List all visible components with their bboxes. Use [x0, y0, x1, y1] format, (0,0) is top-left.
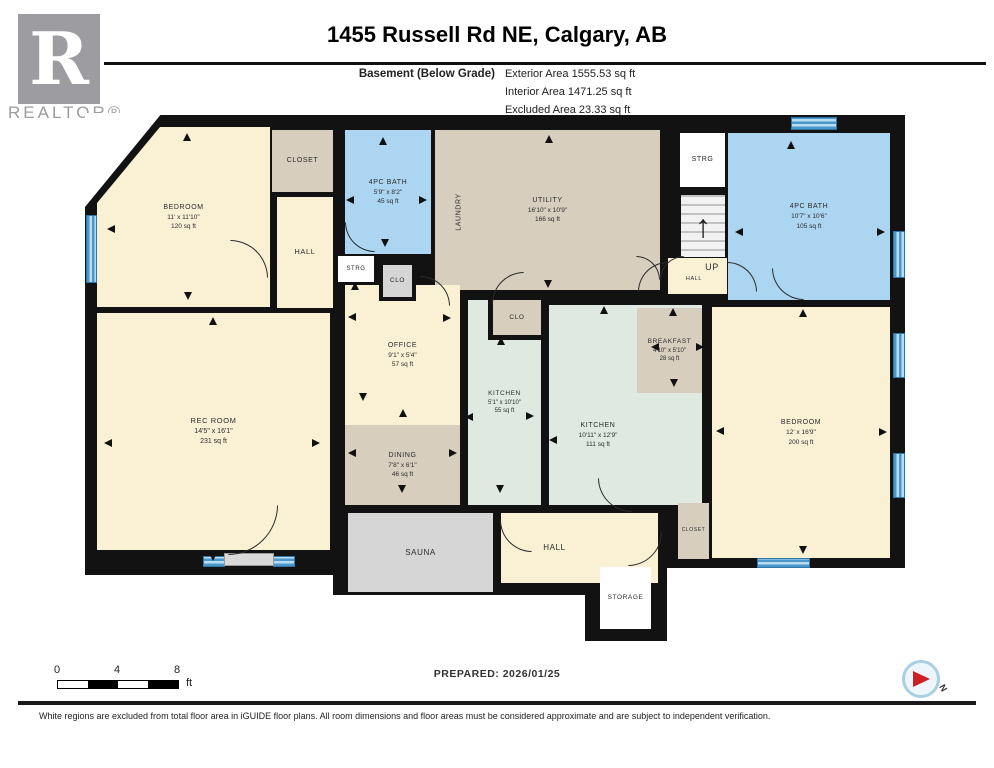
direction-arrow: [716, 427, 724, 435]
room-dining: DINING7'8" x 6'1"46 sq ft: [345, 425, 460, 505]
direction-arrow: [526, 412, 534, 420]
room-label: 57 sq ft: [392, 360, 413, 369]
direction-arrow: [419, 196, 427, 204]
room-strg-small: STRG: [338, 256, 374, 282]
room-label: DINING: [388, 451, 416, 461]
direction-arrow: [381, 239, 389, 247]
room-closet-top-left: CLOSET: [272, 130, 333, 192]
direction-arrow: [670, 379, 678, 387]
room-storage: STORAGE: [600, 567, 651, 629]
footer-divider: [18, 701, 976, 705]
room-label: 55 sq ft: [495, 407, 515, 416]
plan-label-up: UP: [705, 262, 719, 272]
room-label: HALL: [294, 247, 315, 258]
room-label: 9'1" x 5'4": [388, 351, 416, 360]
direction-arrow: [544, 280, 552, 288]
direction-arrow: [184, 292, 192, 300]
direction-arrow: [696, 343, 704, 351]
room-label: 7'8" x 6'1": [388, 461, 416, 470]
direction-arrow: [879, 428, 887, 436]
scale-bar-segments: [57, 680, 179, 689]
room-label: 120 sq ft: [171, 222, 196, 231]
room-label: 105 sq ft: [797, 222, 822, 231]
room-label: OFFICE: [388, 341, 417, 351]
direction-arrow: [799, 309, 807, 317]
room-label: 16'10" x 10'9": [528, 206, 567, 215]
direction-arrow: [348, 313, 356, 321]
room-label: 166 sq ft: [535, 215, 560, 224]
room-label: 5'9" x 8'2": [374, 188, 402, 197]
direction-arrow: [351, 282, 359, 290]
room-label: BEDROOM: [781, 418, 821, 428]
window: [86, 215, 97, 283]
room-label: 200 sq ft: [789, 438, 814, 447]
room-label: CLOSET: [287, 156, 319, 166]
window: [273, 556, 295, 567]
room-bedroom-right: BEDROOM12' x 16'9"200 sq ft: [712, 307, 890, 558]
direction-arrow: [417, 269, 425, 277]
direction-arrow: [735, 228, 743, 236]
room-label: SAUNA: [405, 547, 436, 559]
direction-arrow: [496, 485, 504, 493]
room-label: CLOSET: [682, 527, 706, 534]
direction-arrow: [379, 137, 387, 145]
floorplan-page: R REALTOR® 1455 Russell Rd NE, Calgary, …: [0, 0, 994, 768]
compass-north-label: N: [937, 683, 949, 694]
room-label: 10'11" x 12'9": [579, 431, 618, 440]
direction-arrow: [399, 409, 407, 417]
room-label: KITCHEN: [581, 421, 616, 431]
room-label: 231 sq ft: [200, 437, 227, 447]
stairs-up-arrow: ↑: [695, 210, 711, 242]
room-rec-room: REC ROOM14'5" x 16'1"231 sq ft: [97, 313, 330, 550]
room-label: 11' x 11'10": [167, 213, 199, 222]
room-label: CLO: [390, 276, 405, 285]
direction-arrow: [651, 343, 659, 351]
room-label: STRG: [346, 265, 365, 274]
window: [757, 558, 810, 568]
plan-label-laundry: LAUNDRY: [456, 193, 463, 231]
prepared-date: PREPARED: 2026/01/25: [0, 668, 994, 680]
room-label: CLO: [509, 313, 524, 322]
direction-arrow: [497, 337, 505, 345]
direction-arrow: [787, 141, 795, 149]
room-label: 45 sq ft: [377, 197, 398, 206]
direction-arrow: [465, 413, 473, 421]
floor-plan: UTILITY16'10" x 10'9"166 sq ftBEDROOM11'…: [0, 0, 994, 660]
direction-arrow: [877, 228, 885, 236]
window: [893, 333, 905, 378]
direction-arrow: [449, 449, 457, 457]
direction-arrow: [104, 439, 112, 447]
direction-arrow: [183, 133, 191, 141]
direction-arrow: [209, 553, 217, 561]
plan-label-up-hall-tag: HALL: [686, 276, 702, 282]
direction-arrow: [669, 308, 677, 316]
room-label: 5'1" x 10'10": [488, 399, 521, 408]
direction-arrow: [398, 485, 406, 493]
room-office: OFFICE9'1" x 5'4"57 sq ft: [345, 285, 460, 425]
direction-arrow: [346, 196, 354, 204]
room-label: 10'7" x 10'6": [791, 212, 827, 221]
room-label: 28 sq ft: [660, 355, 680, 364]
direction-arrow: [359, 393, 367, 401]
window: [893, 453, 905, 498]
compass-icon: N: [902, 660, 940, 698]
room-label: 14'5" x 16'1": [194, 427, 232, 437]
disclaimer-text: White regions are excluded from total fl…: [39, 711, 974, 721]
room-strg-top: STRG: [680, 133, 725, 187]
room-label: UTILITY: [532, 196, 562, 206]
window: [893, 231, 905, 278]
room-label: 4PC BATH: [369, 178, 408, 188]
room-label: 12' x 16'9": [786, 428, 816, 437]
room-closet-right: CLOSET: [678, 503, 709, 559]
room-label: REC ROOM: [190, 416, 236, 427]
staircase: ↑: [681, 195, 725, 257]
direction-arrow: [443, 314, 451, 322]
room-label: 4PC BATH: [790, 202, 829, 212]
room-label: HALL: [543, 542, 565, 554]
room-label: BEDROOM: [163, 203, 203, 213]
direction-arrow: [799, 546, 807, 554]
door-panel: [224, 553, 274, 566]
direction-arrow: [312, 439, 320, 447]
room-utility: UTILITY16'10" x 10'9"166 sq ft: [435, 130, 660, 290]
direction-arrow: [549, 436, 557, 444]
room-hall-upper: HALL: [277, 197, 333, 308]
direction-arrow: [545, 135, 553, 143]
room-sauna: SAUNA: [348, 513, 493, 592]
room-label: 46 sq ft: [392, 470, 413, 479]
room-clo-small: CLO: [379, 261, 416, 301]
direction-arrow: [209, 317, 217, 325]
room-label: STRG: [692, 155, 714, 165]
room-label: 111 sq ft: [586, 440, 610, 449]
room-clo-kitchen: CLO: [488, 300, 541, 340]
room-label: STORAGE: [608, 593, 644, 602]
compass-needle-icon: [913, 671, 930, 687]
direction-arrow: [600, 306, 608, 314]
window: [791, 117, 837, 130]
room-label: KITCHEN: [488, 389, 521, 398]
direction-arrow: [107, 225, 115, 233]
direction-arrow: [348, 449, 356, 457]
